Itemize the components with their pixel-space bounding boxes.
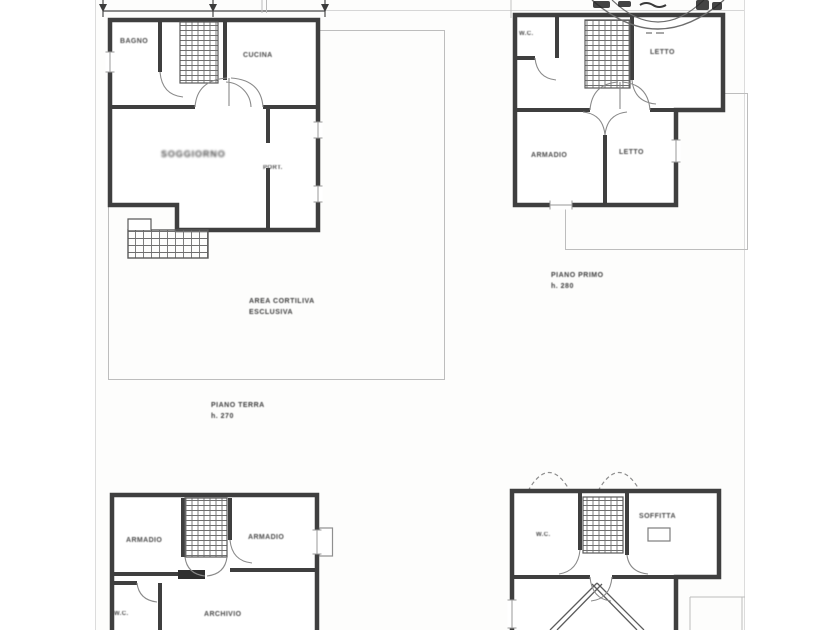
room-label-cucina: CUCINA: [243, 52, 273, 59]
external-step: [128, 219, 151, 230]
room-label-letto-1: LETTO: [650, 49, 675, 56]
attic-plan-drawing: [460, 460, 760, 630]
ground-floor-caption: PIANO TERRA h. 270: [211, 400, 265, 422]
ground-floor-plan-drawing: [95, 0, 460, 435]
staircase-hatch: [185, 498, 227, 557]
basement-plan-drawing: [95, 460, 345, 630]
room-label-wc-lower-left: W.C.: [114, 611, 129, 617]
balcony-boundary-line: [690, 597, 745, 630]
room-label-portico: PORT.: [263, 165, 283, 171]
floor-area-lower: [512, 577, 676, 630]
dormer-arcs: [528, 473, 640, 492]
staircase-hatch: [583, 497, 623, 553]
room-label-wc-attic: W.C.: [536, 532, 551, 538]
room-label-armadio-lower-2: ARMADIO: [248, 534, 284, 541]
room-label-wc-first-floor: W.C.: [519, 31, 534, 37]
first-floor-caption: PIANO PRIMO h. 280: [551, 270, 604, 292]
room-label-armadio-first-floor: ARMADIO: [531, 152, 567, 159]
window-openings: [508, 600, 517, 628]
external-steps-hatch: [128, 230, 208, 258]
room-label-letto-2: LETTO: [619, 149, 644, 156]
dimension-arrows-icon: [99, 0, 329, 17]
courtyard-note-line1: AREA CORTILIVA: [249, 296, 315, 307]
courtyard-note: AREA CORTILIVA ESCLUSIVA: [249, 296, 315, 318]
room-label-soggiorno: SOGGIORNO: [161, 149, 226, 159]
roof-window-symbol: [648, 528, 670, 541]
room-label-archivio: ARCHIVIO: [204, 611, 241, 618]
staircase-hatch: [180, 22, 218, 83]
ground-floor-caption-height: h. 270: [211, 411, 265, 422]
room-label-armadio-lower-1: ARMADIO: [126, 537, 162, 544]
first-floor-caption-height: h. 280: [551, 281, 604, 292]
courtyard-note-line2: ESCLUSIVA: [249, 307, 315, 318]
room-label-soffitta: SOFFITTA: [639, 513, 676, 520]
staircase-hatch: [585, 20, 630, 88]
window-openings: [313, 530, 322, 554]
first-floor-plan-drawing: [460, 0, 760, 310]
ground-floor-caption-title: PIANO TERRA: [211, 400, 265, 411]
room-label-bagno: BAGNO: [120, 38, 148, 45]
scanned-floor-plan-sheet: BAGNO CUCINA SOGGIORNO PORT. AREA CORTIL…: [0, 0, 840, 630]
first-floor-caption-title: PIANO PRIMO: [551, 270, 604, 281]
